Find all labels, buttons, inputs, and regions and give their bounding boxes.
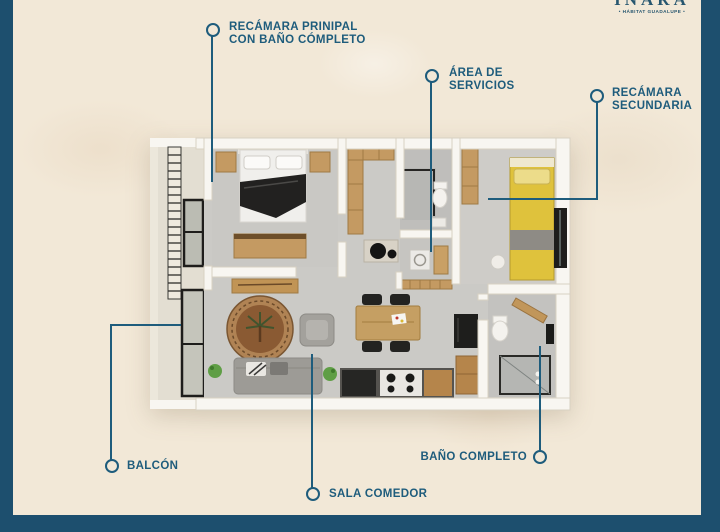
label-recamara-secundaria: RECÁMARA SECUNDARIA [612,87,692,113]
label-line: SALA COMEDOR [329,488,427,501]
wall-right [556,138,570,410]
label-bano-completo: BAÑO COMPLETO [402,451,527,464]
label-line: RECÁMARA PRINIPAL [229,21,366,34]
label-line: ÁREA DE [449,67,515,80]
wall-bath2-left-top [478,294,488,300]
toilet [433,189,447,208]
sink [432,218,446,227]
wall-bottom [196,398,570,410]
leader-line [596,102,598,199]
plant [208,364,222,378]
leader-line [488,198,598,200]
label-area-servicios: ÁREA DE SERVICIOS [449,67,515,93]
pillow [514,169,550,184]
wall-bedroom-right [338,138,346,214]
side-table [491,255,505,269]
kitchen-cabinet [456,356,478,394]
wall-top [196,138,570,149]
wall-secondary-bottom [488,284,570,294]
mirror [546,324,554,344]
wall-left-mid [204,266,212,290]
nightstand-left [216,152,236,172]
leader-line [430,82,432,252]
wall-utility-stub [396,272,402,289]
brand-logo: INARA • HÁBITAT GUADALUPE • [600,0,704,16]
frame-bar-bottom [0,515,720,532]
frame-bar-right [701,0,720,532]
pillow [276,156,302,169]
wall-bedroom-bottom [212,267,296,277]
leader-dot [533,450,547,464]
leader-line [211,36,213,182]
leader-dot [306,487,320,501]
label-line: CON BAÑO CÓMPLETO [229,34,366,47]
label-line: RECÁMARA [612,87,692,100]
utility-shelf [434,246,448,274]
balcony-louver-screen [168,147,181,299]
leader-line [311,354,313,488]
leader-dot [105,459,119,473]
kitchen-counter [340,368,454,398]
wardrobe-side [348,160,363,234]
vanity-bowl [370,243,386,259]
balcony [150,138,204,409]
brand-name: INARA [600,0,704,10]
vanity-bowl [388,250,397,259]
wall-bedroom-right-lower [338,242,346,277]
leader-dot [206,23,220,37]
gray-blanket [510,230,554,250]
cooktop [380,370,422,396]
wall-closet-bath [396,138,404,218]
secondary-bedroom-window [554,208,567,268]
label-line: BAÑO COMPLETO [402,451,527,464]
label-recamara-principal: RECÁMARA PRINIPAL CON BAÑO CÓMPLETO [229,21,366,47]
tv-console [232,279,298,293]
label-balcon: BALCÓN [127,460,178,473]
label-line: BALCÓN [127,460,178,473]
dining-table [356,306,420,340]
label-line: SECUNDARIA [612,100,692,113]
leader-line [539,346,541,451]
louver-doors [400,280,452,289]
leader-line [110,324,181,326]
leader-dot [590,89,604,103]
wall-bath2-left [478,320,488,398]
pillow [244,156,270,169]
balcony-door [182,290,204,396]
brand-tagline: • HÁBITAT GUADALUPE • [611,10,692,15]
frame-bar-left [0,0,13,532]
wall-secondary-left [452,138,460,284]
balcony-window [184,200,203,266]
leader-line [110,324,112,460]
toilet [492,321,508,341]
flyer: INARA • HÁBITAT GUADALUPE • [0,0,720,532]
wall-bath-utility [400,230,456,238]
plant [323,367,337,381]
washer [410,250,430,270]
label-sala-comedor: SALA COMEDOR [329,488,427,501]
nightstand-right [310,152,330,172]
papers [391,313,406,325]
wardrobe [462,148,478,204]
label-line: SERVICIOS [449,80,515,93]
leader-dot [425,69,439,83]
